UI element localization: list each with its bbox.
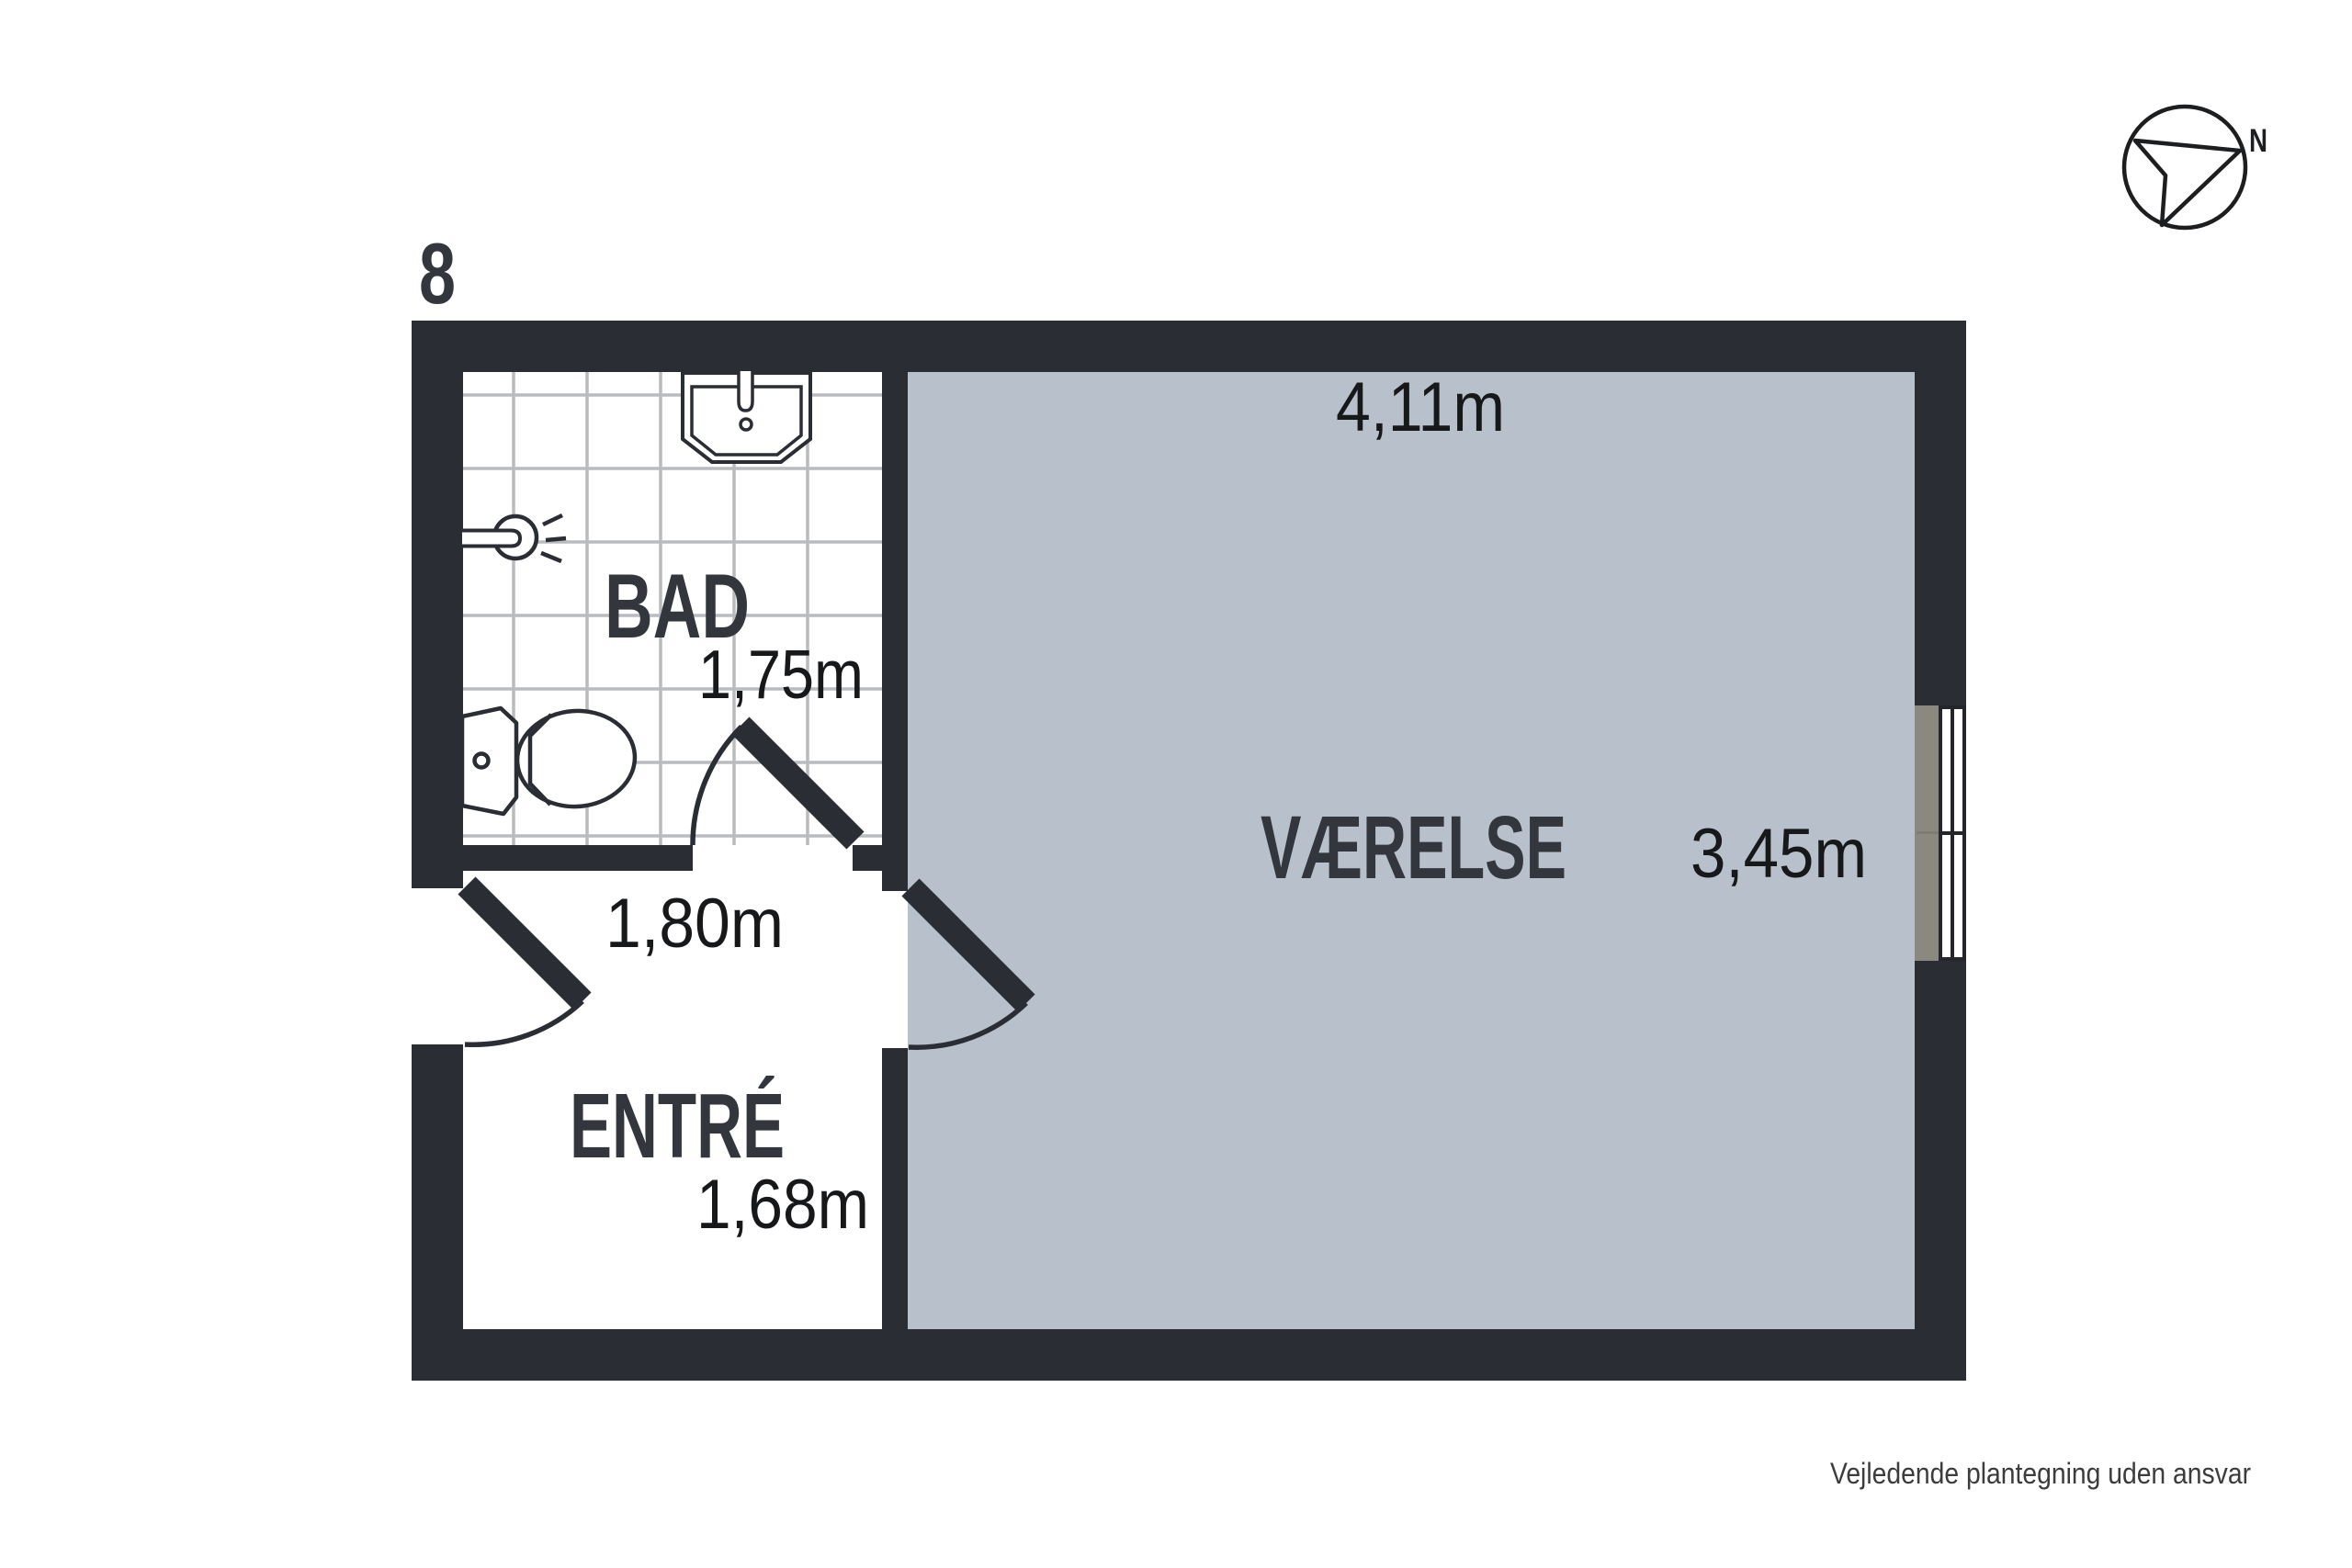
svg-text:1,75m: 1,75m bbox=[698, 636, 864, 713]
svg-text:4,11m: 4,11m bbox=[1336, 368, 1505, 446]
svg-text:1,68m: 1,68m bbox=[696, 1166, 869, 1244]
svg-text:ENTRÉ: ENTRÉ bbox=[570, 1075, 785, 1178]
svg-text:Vejledende plantegning uden an: Vejledende plantegning uden ansvar bbox=[1830, 1457, 2251, 1490]
svg-text:N: N bbox=[2249, 123, 2267, 159]
svg-text:VÆRELSE: VÆRELSE bbox=[1261, 797, 1566, 897]
svg-text:1,80m: 1,80m bbox=[605, 885, 784, 963]
svg-text:8: 8 bbox=[419, 225, 456, 321]
svg-text:3,45m: 3,45m bbox=[1690, 815, 1867, 893]
